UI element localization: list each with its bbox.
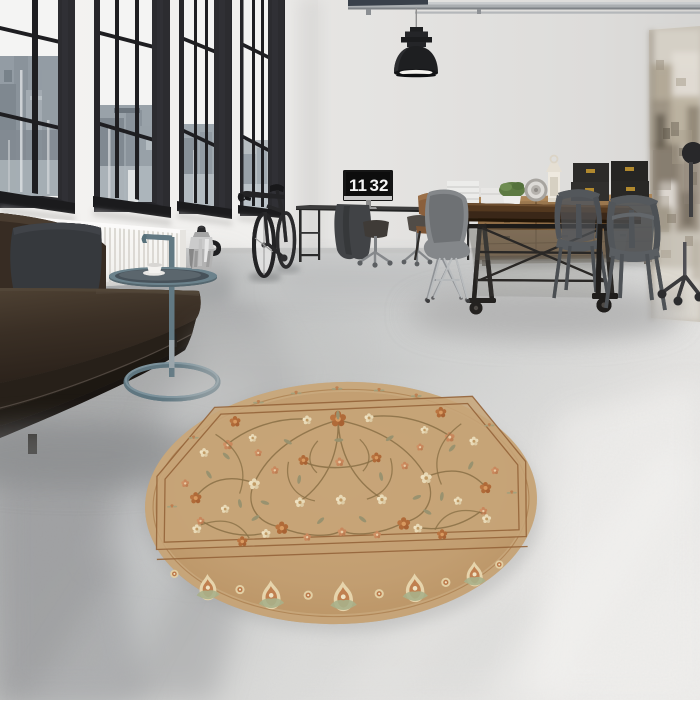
svg-text:32: 32 xyxy=(370,176,389,195)
svg-text:11: 11 xyxy=(349,176,367,195)
